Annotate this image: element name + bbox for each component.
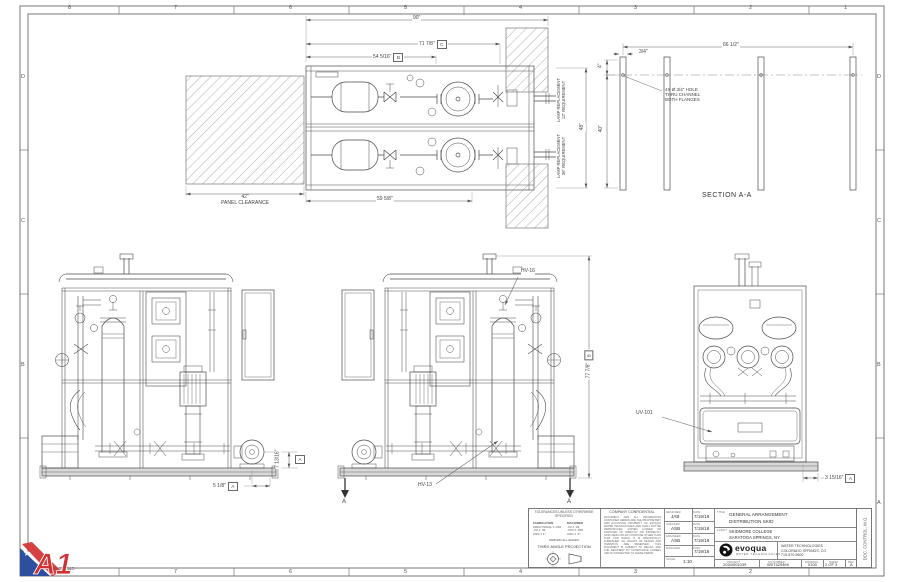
endview-dim: 3 15/16"A: [824, 474, 856, 483]
checker-date: 7/19/18: [694, 526, 709, 531]
zone-number: 6: [289, 5, 292, 11]
plan-dim-depth: 48": [580, 122, 586, 131]
zone-number: 7: [174, 569, 177, 575]
zone-letter: A: [877, 500, 881, 506]
drawing-sheet: 8 7 6 5 4 3 2 1 8 7 6 5 4 3 2 D C B D C …: [0, 0, 900, 582]
svg-text:★: ★: [23, 549, 31, 559]
zone-number: 5: [404, 5, 407, 11]
elevation-linework: [40, 254, 278, 480]
tolerance-col-machined-values: .XX ± .03 .XXX ± .005 ANG ± .5°: [567, 526, 597, 536]
zone-number: 6: [289, 569, 292, 575]
scale-value: 1:10: [683, 559, 692, 564]
ga-number: W0T429469: [767, 562, 789, 567]
section-aa-view: [606, 57, 862, 190]
lamp-replacement-note-top: LAMP REPLACEMENT12" REQUIREMENT: [557, 72, 569, 128]
valve-tag-hv16: HV-16: [521, 269, 535, 275]
company-address: WATER TECHNOLOGIES COLORADO SPRINGS, CO …: [781, 544, 826, 558]
section-dim-height: 40": [599, 124, 605, 133]
drawing-number: 0100: [808, 562, 817, 567]
zone-letter: B: [877, 362, 881, 368]
project-number: 2034/001039: [723, 562, 746, 567]
signoff-block: DESIGNER DATE JAB 7/19/18 CHECKER DATE A…: [665, 509, 715, 567]
role-header: MANAGER: [666, 546, 680, 550]
elev1-dim-width: 5 1/8"A: [212, 482, 239, 491]
tolerance-note: DEBURR ALL EDGES: [531, 539, 597, 542]
tolerance-header: TOLERANCES UNLESS OTHERWISE SPECIFIED: [531, 511, 597, 518]
zone-letter: C: [877, 218, 881, 224]
confidential-header: COMPANY CONFIDENTIAL: [603, 511, 661, 515]
evoqua-tagline: WATER TECHNOLOGIES: [736, 553, 781, 556]
section-dim-hole: 4": [599, 62, 605, 69]
engineer-date: 7/19/18: [694, 538, 709, 543]
elevation-2-mirror: [338, 254, 576, 480]
dim-ref-box: A: [845, 474, 855, 483]
svg-text:A1: A1: [33, 548, 72, 578]
section-arrow-label-right: A: [567, 499, 571, 506]
title-block: TOLERANCES UNLESS OTHERWISE SPECIFIED FA…: [528, 508, 858, 568]
zone-letter: D: [877, 74, 881, 80]
elev2-dim-height: 77 7/8"B: [584, 350, 593, 380]
lamp-replacement-note-bottom: LAMP REPLACEMENT36" REQUIREMENT: [557, 128, 569, 184]
title-header: TITLE: [717, 510, 725, 514]
section-dim-width: 66 1/2": [722, 43, 740, 49]
evoqua-wordmark: evoqua: [735, 543, 767, 553]
plan-dim-c: 71 7/8"C: [418, 40, 448, 49]
elev1-dim-height: 7 13/16": [275, 449, 281, 469]
third-angle-projection-icon: [543, 551, 587, 567]
zone-number: 1: [844, 5, 847, 11]
zone-letter: C: [21, 218, 25, 224]
confidential-block: COMPANY CONFIDENTIAL DOCUMENT AND ALL IN…: [601, 509, 665, 567]
plan-dim-overall: 90": [412, 16, 421, 22]
zone-number: 2: [749, 569, 752, 575]
section-aa-dimensions: [604, 43, 853, 188]
zone-number: 4: [519, 569, 522, 575]
dim-ref-box: B: [393, 53, 403, 62]
tolerance-block: TOLERANCES UNLESS OTHERWISE SPECIFIED FA…: [529, 509, 601, 567]
client-name: SKIDMORE COLLEGE: [729, 529, 772, 534]
auction-watermark-logo: ★ A1: [18, 540, 78, 578]
rev-value: A: [850, 562, 853, 567]
evoqua-logo-icon: [719, 543, 733, 557]
zone-letter: D: [21, 74, 25, 80]
engineer-initials: ASB: [671, 538, 680, 543]
dim-ref-box: A: [228, 482, 238, 491]
client-header: CLIENT: [717, 528, 727, 532]
sheet-number: 2 OF 3: [825, 562, 837, 567]
doc-control-strip: DOC. CONTROL, W.O.: [856, 508, 872, 568]
doc-control-label: DOC. CONTROL, W.O.: [863, 512, 868, 566]
panel-clearance-label: 42"PANEL CLEARANCE: [205, 195, 285, 206]
auction-logo-icon: ★ A1: [18, 540, 78, 578]
section-arrow-label-left: A: [342, 499, 346, 506]
zone-number: 5: [404, 569, 407, 575]
zone-number: 3: [634, 5, 637, 11]
checker-initials: ASB: [671, 526, 680, 531]
zone-letter: B: [21, 362, 25, 368]
section-dim-flange: 3/4": [638, 50, 649, 56]
zone-number: 7: [174, 5, 177, 11]
zone-number: 3: [634, 569, 637, 575]
scale-header: SCALE: [666, 557, 675, 561]
plan-dim-bottom: 59 5/8": [376, 197, 394, 203]
designer-initials: JAB: [671, 514, 679, 519]
confidential-body: DOCUMENT AND ALL INFORMATION CONTAINED H…: [604, 517, 661, 556]
dim-ref-box: C: [437, 40, 447, 49]
drawing-title-line2: DISTRIBUTION SKID: [729, 519, 773, 524]
zone-number: 8: [68, 5, 71, 11]
zone-number: 4: [519, 5, 522, 11]
zone-number: 2: [749, 5, 752, 11]
section-title: SECTION A-A: [702, 192, 752, 200]
projection-label: THIRD ANGLE PROJECTION: [531, 545, 597, 549]
valve-tag-hv13: HV-13: [418, 483, 432, 489]
dim-ref-box: B: [584, 351, 593, 361]
equipment-tag-uv101: UV-101: [636, 411, 653, 417]
client-city: SARATOGA SPRINGS, NY: [729, 535, 780, 540]
end-view: [684, 254, 818, 471]
tolerance-col-fabrication-values: FRACTIONAL ± 1/16 .XX ± .06 ANG ± 1°: [533, 526, 563, 536]
drawing-title-line1: GENERAL ARRANGEMENT: [729, 512, 788, 517]
section-hole-note: 4X Ø.3/4" HOLETHRU CHANNELBOTH FLANGES: [665, 88, 700, 103]
plan-dim-b: 54 5/16"B: [372, 53, 404, 62]
drawing-linework: [0, 0, 900, 582]
designer-date: 7/19/18: [694, 514, 709, 519]
manager-date: 7/19/18: [694, 549, 709, 554]
elev1-ref-box: A: [295, 455, 305, 464]
title-section: TITLE GENERAL ARRANGEMENT DISTRIBUTION S…: [715, 509, 857, 567]
